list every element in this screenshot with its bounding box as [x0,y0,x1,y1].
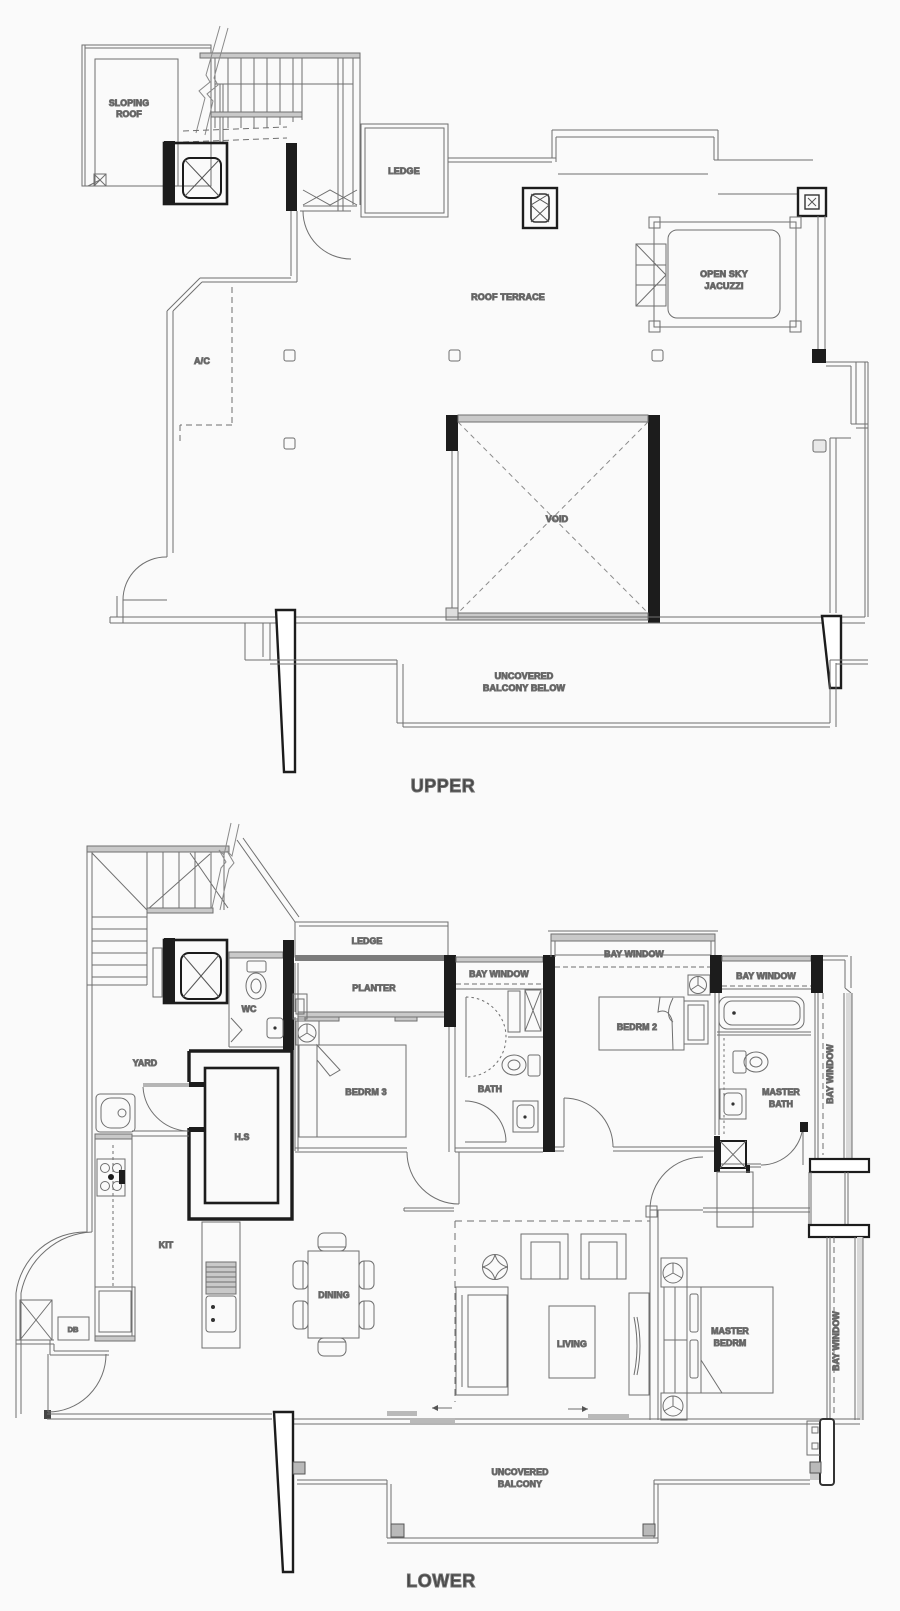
svg-text:LIVING: LIVING [557,1339,587,1349]
svg-text:LEDGE: LEDGE [352,936,383,946]
svg-text:LEDGE: LEDGE [388,166,420,176]
svg-text:BALCONY BELOW: BALCONY BELOW [483,683,566,693]
svg-text:BATH: BATH [478,1084,502,1094]
svg-text:A/C: A/C [194,356,210,366]
svg-text:BEDRM 3: BEDRM 3 [345,1087,387,1097]
svg-text:BAY WINDOW: BAY WINDOW [825,1044,835,1104]
svg-text:BAY WINDOW: BAY WINDOW [831,1311,841,1371]
svg-text:PLANTER: PLANTER [352,983,396,993]
svg-text:YARD: YARD [133,1058,158,1068]
svg-text:BEDRM: BEDRM [714,1338,747,1348]
svg-text:BEDRM 2: BEDRM 2 [617,1022,657,1032]
svg-text:BAY WINDOW: BAY WINDOW [604,949,664,959]
svg-text:BAY WINDOW: BAY WINDOW [736,971,796,981]
svg-text:H.S: H.S [235,1132,250,1142]
svg-text:BATH: BATH [769,1099,793,1109]
svg-text:UPPER: UPPER [411,776,476,796]
svg-text:MASTER: MASTER [711,1326,749,1336]
svg-text:KIT: KIT [159,1240,174,1250]
svg-text:ROOF: ROOF [116,109,142,119]
svg-text:JACUZZI: JACUZZI [704,281,743,291]
svg-text:WC: WC [242,1004,257,1014]
svg-text:UNCOVERED: UNCOVERED [491,1467,548,1477]
svg-text:LOWER: LOWER [406,1571,476,1591]
svg-text:VOID: VOID [546,514,569,524]
svg-text:DB: DB [68,1325,79,1334]
svg-text:SLOPING: SLOPING [109,98,149,108]
svg-text:ROOF TERRACE: ROOF TERRACE [471,292,545,302]
svg-text:BAY WINDOW: BAY WINDOW [469,969,529,979]
svg-text:UNCOVERED: UNCOVERED [495,671,554,681]
svg-text:DINING: DINING [318,1290,349,1300]
svg-text:MASTER: MASTER [762,1087,800,1097]
svg-text:OPEN SKY: OPEN SKY [700,269,748,279]
svg-text:BALCONY: BALCONY [498,1479,542,1489]
